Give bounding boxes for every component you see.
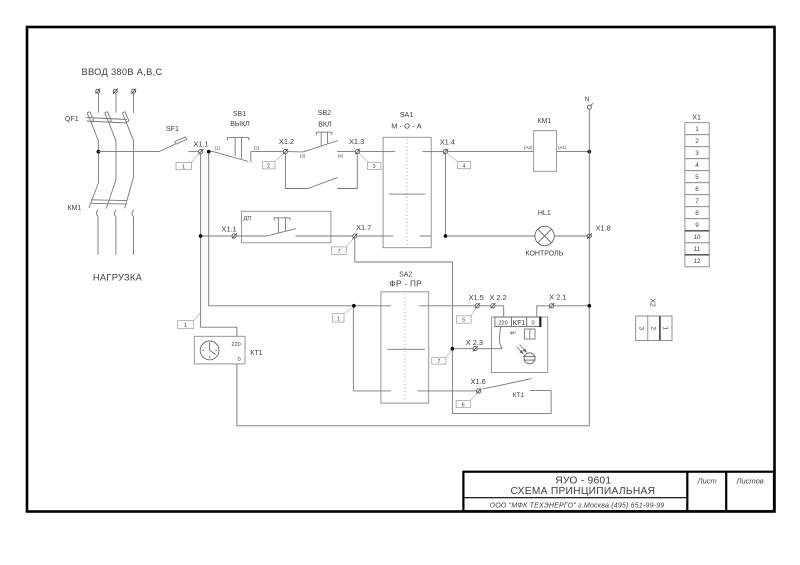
svg-text:X1: X1 xyxy=(692,115,701,122)
svg-text:(1): (1) xyxy=(215,146,221,151)
svg-text:ФР: ФР xyxy=(510,331,517,336)
svg-text:HL1: HL1 xyxy=(538,210,551,217)
svg-text:4: 4 xyxy=(462,163,465,169)
svg-text:ЯУО - 9601: ЯУО - 9601 xyxy=(555,476,611,487)
svg-text:2: 2 xyxy=(695,138,699,145)
svg-text:ВВОД 380В А,В,С: ВВОД 380В А,В,С xyxy=(81,67,162,77)
svg-text:X 2.2: X 2.2 xyxy=(489,293,506,302)
svg-text:SB2: SB2 xyxy=(318,110,331,117)
svg-text:ДП: ДП xyxy=(243,216,251,222)
svg-text:1: 1 xyxy=(695,126,699,133)
svg-text:2: 2 xyxy=(267,164,270,170)
svg-text:ВЫКЛ: ВЫКЛ xyxy=(230,121,250,128)
svg-text:1: 1 xyxy=(662,326,669,330)
svg-text:SA2: SA2 xyxy=(399,272,412,279)
svg-text:М - О - А: М - О - А xyxy=(391,121,421,130)
svg-text:X1.8: X1.8 xyxy=(596,224,611,233)
svg-text:SF1: SF1 xyxy=(166,126,179,133)
svg-text:КОНТРОЛЬ: КОНТРОЛЬ xyxy=(525,251,563,258)
svg-text:SA1: SA1 xyxy=(400,112,413,119)
svg-text:(2): (2) xyxy=(254,146,260,151)
svg-text:КМ1: КМ1 xyxy=(537,118,551,125)
svg-text:SB1: SB1 xyxy=(233,111,246,118)
svg-text:КТ1: КТ1 xyxy=(250,350,262,357)
svg-text:KF1: KF1 xyxy=(513,320,526,327)
svg-text:Листов: Листов xyxy=(735,476,763,485)
svg-text:X1.2: X1.2 xyxy=(279,137,294,146)
svg-text:(3): (3) xyxy=(300,153,306,158)
svg-text:220: 220 xyxy=(499,321,508,327)
svg-text:X1.5: X1.5 xyxy=(469,293,484,302)
svg-text:(А2): (А2) xyxy=(524,145,533,150)
svg-text:3: 3 xyxy=(638,326,645,330)
svg-text:X1.3: X1.3 xyxy=(349,137,364,146)
svg-text:(4): (4) xyxy=(338,153,344,158)
svg-text:КМ1: КМ1 xyxy=(68,205,82,212)
svg-text:6: 6 xyxy=(462,402,465,408)
svg-text:1: 1 xyxy=(337,316,340,322)
svg-text:9: 9 xyxy=(695,222,699,229)
svg-text:КТ1: КТ1 xyxy=(513,392,525,399)
svg-text:X1.7: X1.7 xyxy=(356,223,371,232)
svg-text:7: 7 xyxy=(337,249,340,255)
svg-text:0: 0 xyxy=(531,321,534,327)
svg-text:8: 8 xyxy=(695,210,699,217)
svg-text:QF1: QF1 xyxy=(65,116,79,123)
svg-text:1: 1 xyxy=(182,164,185,170)
svg-text:1: 1 xyxy=(184,323,187,329)
svg-text:5: 5 xyxy=(462,318,465,324)
svg-text:ВКЛ: ВКЛ xyxy=(318,121,332,128)
svg-text:6: 6 xyxy=(695,186,699,193)
svg-text:Лист: Лист xyxy=(696,476,716,485)
svg-text:НАГРУЗКА: НАГРУЗКА xyxy=(93,273,143,283)
svg-text:N: N xyxy=(585,96,590,103)
svg-text:СХЕМА ПРИНЦИПИАЛЬНАЯ: СХЕМА ПРИНЦИПИАЛЬНАЯ xyxy=(511,486,656,497)
svg-text:7: 7 xyxy=(437,359,440,365)
svg-text:4: 4 xyxy=(695,162,699,169)
svg-text:11: 11 xyxy=(694,246,701,253)
svg-text:3: 3 xyxy=(372,164,375,170)
svg-text:X1.1: X1.1 xyxy=(193,139,208,148)
svg-text:(А1): (А1) xyxy=(558,145,567,150)
svg-text:ООО "МФК ТЕХЭНЕРГО" г.Москва: ООО "МФК ТЕХЭНЕРГО" г.Москва (495) 651-9… xyxy=(490,502,665,509)
svg-text:X1.1: X1.1 xyxy=(221,225,236,234)
svg-text:220: 220 xyxy=(232,342,241,348)
svg-text:7: 7 xyxy=(695,198,699,205)
svg-text:5: 5 xyxy=(695,174,699,181)
svg-text:3: 3 xyxy=(695,150,699,157)
svg-text:10: 10 xyxy=(693,234,701,241)
svg-text:12: 12 xyxy=(693,258,701,265)
svg-text:2: 2 xyxy=(650,326,657,330)
svg-text:X 2.1: X 2.1 xyxy=(549,292,566,301)
svg-text:0: 0 xyxy=(238,357,241,363)
svg-text:X1.6: X1.6 xyxy=(470,377,485,386)
svg-text:X2: X2 xyxy=(649,298,656,307)
svg-text:X1.4: X1.4 xyxy=(440,137,455,146)
svg-text:ФР - ПР: ФР - ПР xyxy=(389,279,422,288)
svg-text:X 2.3: X 2.3 xyxy=(466,338,483,347)
